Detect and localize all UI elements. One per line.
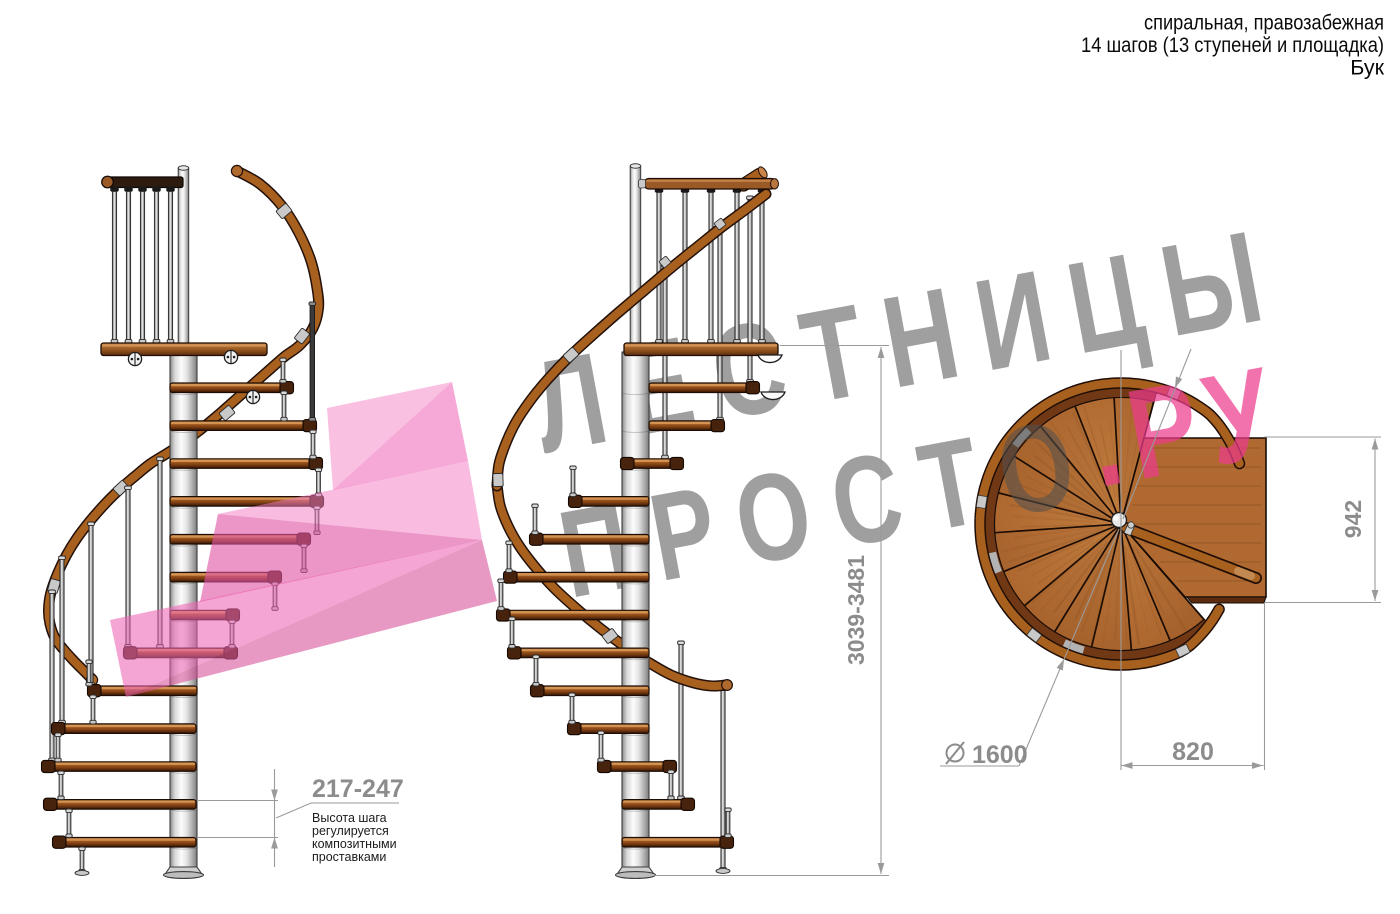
svg-text:14 шагов (13 ступеней и площад: 14 шагов (13 ступеней и площадка): [1081, 33, 1384, 57]
svg-text:820: 820: [1172, 738, 1214, 766]
svg-text:217-247: 217-247: [312, 775, 404, 803]
svg-text:1600: 1600: [972, 741, 1028, 769]
svg-text:3039-3481: 3039-3481: [843, 555, 869, 665]
svg-text:регулируется: регулируется: [312, 824, 389, 838]
svg-text:проставками: проставками: [312, 850, 386, 864]
svg-text:композитными: композитными: [312, 837, 397, 851]
svg-text:Бук: Бук: [1350, 56, 1384, 80]
svg-text:спиральная, правозабежная: спиральная, правозабежная: [1144, 11, 1384, 35]
svg-text:942: 942: [1340, 500, 1366, 538]
svg-text:Высота шага: Высота шага: [312, 811, 387, 825]
